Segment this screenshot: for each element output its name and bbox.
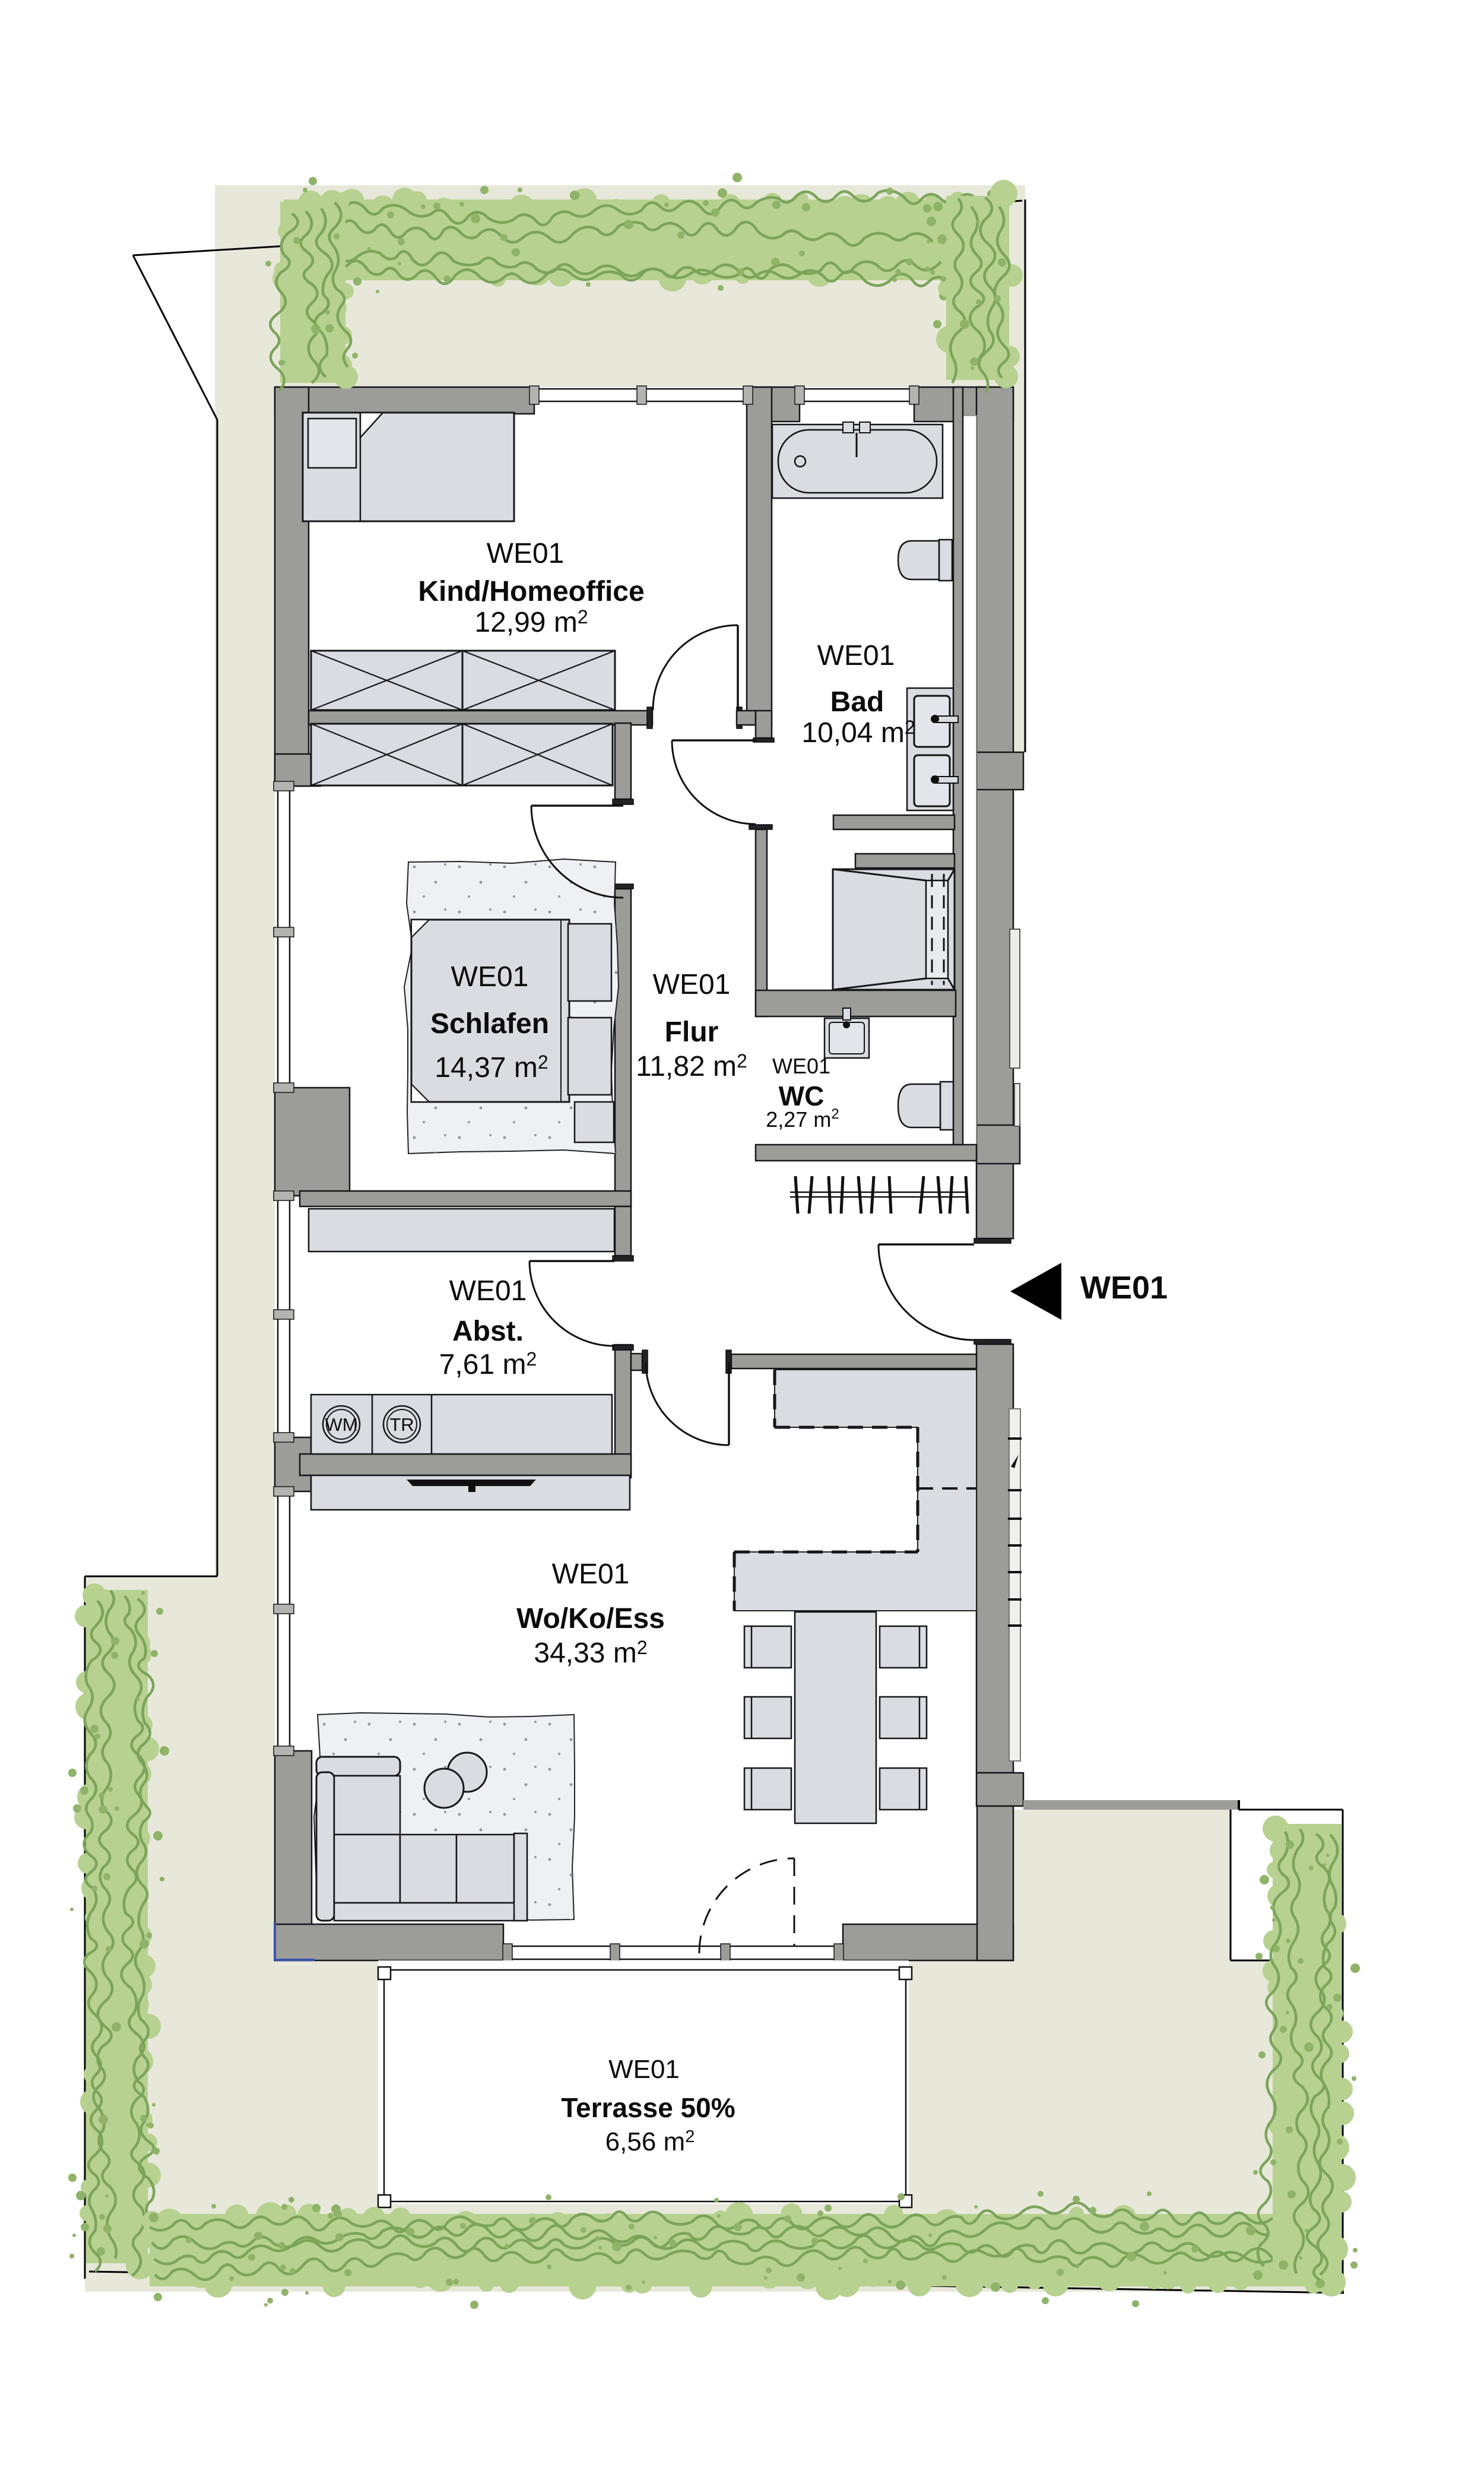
svg-text:14,37 m2: 14,37 m2 (435, 1051, 548, 1084)
svg-text:WE01: WE01 (451, 961, 529, 993)
svg-text:WE01: WE01 (449, 1275, 527, 1307)
svg-text:7,61 m2: 7,61 m2 (439, 1348, 537, 1380)
svg-text:Schlafen: Schlafen (430, 1008, 549, 1040)
svg-text:12,99 m2: 12,99 m2 (474, 606, 588, 638)
svg-text:WE01: WE01 (653, 969, 731, 1000)
svg-text:34,33 m2: 34,33 m2 (534, 1637, 647, 1669)
svg-text:WE01: WE01 (772, 1054, 830, 1078)
svg-text:TR: TR (389, 1414, 414, 1435)
svg-text:WE01: WE01 (487, 538, 565, 569)
svg-text:Terrasse 50%: Terrasse 50% (561, 2092, 735, 2123)
svg-text:Wo/Ko/Ess: Wo/Ko/Ess (516, 1603, 665, 1634)
svg-text:10,04 m2: 10,04 m2 (801, 717, 915, 749)
svg-text:Kind/Homeoffice: Kind/Homeoffice (418, 576, 644, 607)
svg-text:Flur: Flur (665, 1016, 719, 1048)
svg-text:Bad: Bad (830, 686, 884, 718)
svg-text:WE01: WE01 (817, 640, 895, 671)
svg-text:Abst.: Abst. (452, 1316, 524, 1347)
svg-text:11,82 m2: 11,82 m2 (636, 1050, 747, 1082)
svg-text:2,27 m2: 2,27 m2 (766, 1106, 839, 1132)
svg-text:WE01: WE01 (1080, 1270, 1168, 1306)
svg-text:6,56 m2: 6,56 m2 (605, 2127, 695, 2156)
svg-text:WM: WM (325, 1414, 357, 1435)
svg-text:WE01: WE01 (552, 1558, 630, 1590)
svg-text:WE01: WE01 (608, 2055, 680, 2084)
